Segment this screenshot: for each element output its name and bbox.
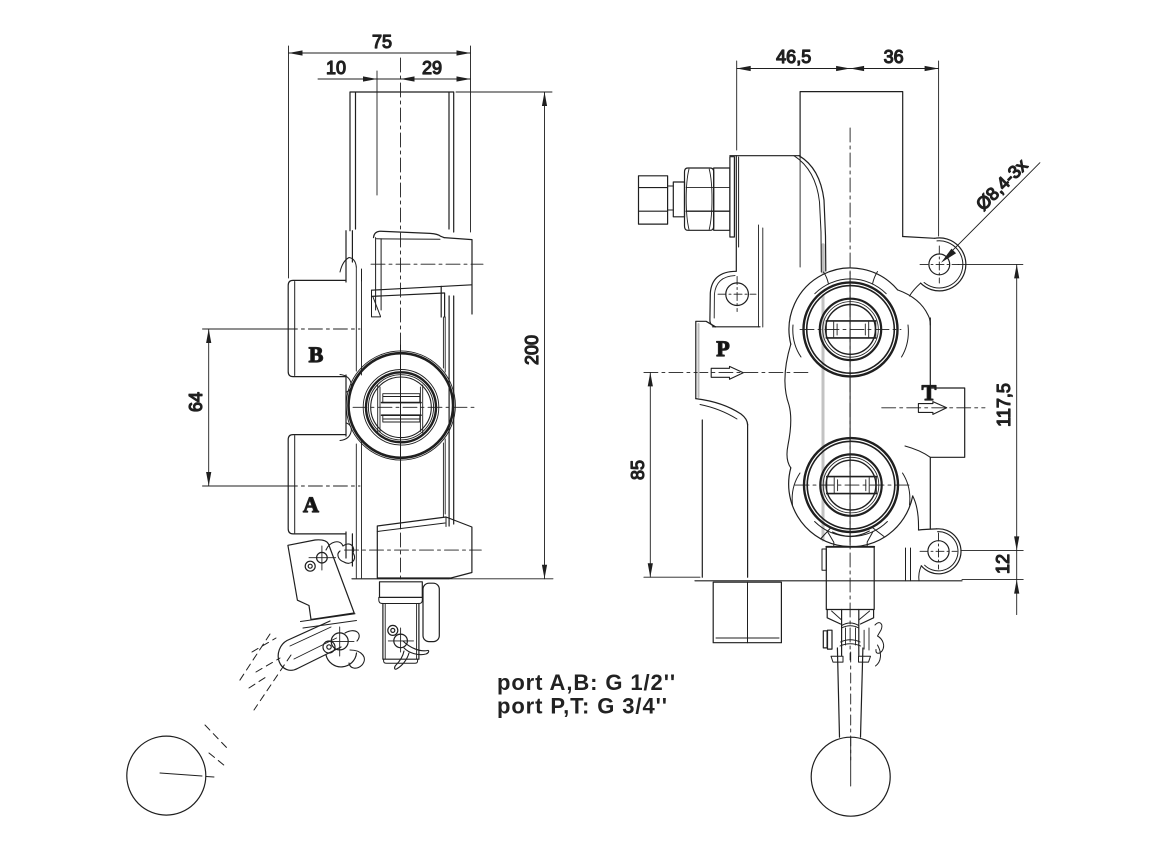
svg-text:12: 12 — [993, 554, 1013, 574]
svg-text:port A,B: G 1/2'': port A,B: G 1/2'' — [497, 670, 676, 695]
svg-text:port P,T: G 3/4'': port P,T: G 3/4'' — [497, 694, 668, 719]
svg-text:85: 85 — [628, 460, 648, 480]
svg-text:P: P — [716, 336, 729, 361]
svg-text:29: 29 — [422, 58, 442, 78]
svg-text:B: B — [309, 342, 324, 367]
svg-text:36: 36 — [884, 47, 904, 67]
svg-text:200: 200 — [522, 335, 542, 365]
svg-text:10: 10 — [326, 58, 346, 78]
svg-text:Ø8,4-3x: Ø8,4-3x — [972, 155, 1031, 214]
svg-text:A: A — [303, 492, 319, 517]
svg-text:64: 64 — [186, 392, 206, 412]
svg-text:117,5: 117,5 — [994, 383, 1014, 427]
svg-text:75: 75 — [372, 32, 392, 52]
svg-text:T: T — [922, 380, 937, 405]
svg-text:46,5: 46,5 — [776, 47, 811, 67]
